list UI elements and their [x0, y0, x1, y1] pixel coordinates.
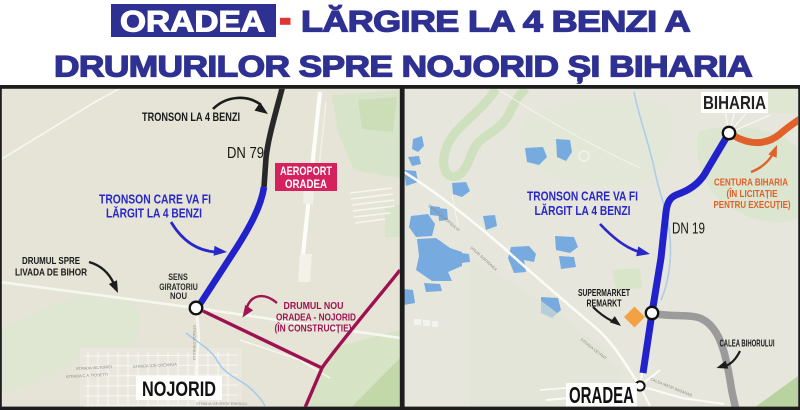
svg-text:ORADEA: ORADEA	[120, 6, 265, 39]
svg-text:LĂRGIT LA 4 BENZI: LĂRGIT LA 4 BENZI	[106, 205, 202, 220]
svg-text:CALEA BIHORULUI: CALEA BIHORULUI	[720, 339, 775, 350]
svg-text:TRONSON LA 4 BENZI: TRONSON LA 4 BENZI	[142, 112, 240, 124]
svg-text:NOU: NOU	[170, 291, 187, 301]
svg-text:DN 79: DN 79	[227, 145, 264, 162]
svg-text:ORADEA - NOJORID: ORADEA - NOJORID	[276, 312, 356, 324]
svg-text:STRADA CRINULUI: STRADA CRINULUI	[192, 325, 197, 360]
svg-text:CENTURA BIHARIA: CENTURA BIHARIA	[714, 176, 788, 188]
svg-text:SUPERMARKET: SUPERMARKET	[578, 288, 630, 299]
svg-text:BIHARIA: BIHARIA	[703, 93, 766, 113]
svg-text:NOJORID: NOJORID	[142, 377, 216, 401]
svg-text:ORADEA: ORADEA	[569, 382, 634, 408]
svg-text:DN 19: DN 19	[672, 221, 705, 238]
svg-text:(ÎN LICITAȚIE: (ÎN LICITAȚIE	[727, 187, 778, 200]
svg-text:REMARKT: REMARKT	[587, 299, 622, 310]
svg-text:SENS: SENS	[168, 272, 188, 282]
svg-text:LIVADA DE BIHOR: LIVADA DE BIHOR	[15, 266, 87, 278]
svg-text:ORADEA: ORADEA	[285, 177, 327, 191]
svg-text:DRUMUL SPRE: DRUMUL SPRE	[22, 255, 80, 267]
svg-text:LĂRGIT LA 4 BENZI: LĂRGIT LA 4 BENZI	[535, 203, 631, 218]
svg-text:AEROPORT: AEROPORT	[280, 164, 333, 178]
svg-text:PENTRU EXECUȚIE): PENTRU EXECUȚIE)	[714, 199, 791, 211]
svg-text:LĂRGIRE LA 4 BENZI A: LĂRGIRE LA 4 BENZI A	[301, 5, 690, 39]
svg-text:DRUMUL NOU: DRUMUL NOU	[284, 300, 344, 312]
svg-text:TRONSON CARE VA FI: TRONSON CARE VA FI	[527, 189, 638, 203]
svg-text:(ÎN CONSTRUCȚIE): (ÎN CONSTRUCȚIE)	[275, 322, 352, 335]
svg-text:TRONSON CARE VA FI: TRONSON CARE VA FI	[99, 193, 211, 207]
svg-text:DRUMURILOR SPRE NOJORID ȘI BIH: DRUMURILOR SPRE NOJORID ȘI BIHARIA	[54, 50, 752, 83]
svg-text:STRADA GEORGE ENESCU: STRADA GEORGE ENESCU	[196, 401, 247, 406]
